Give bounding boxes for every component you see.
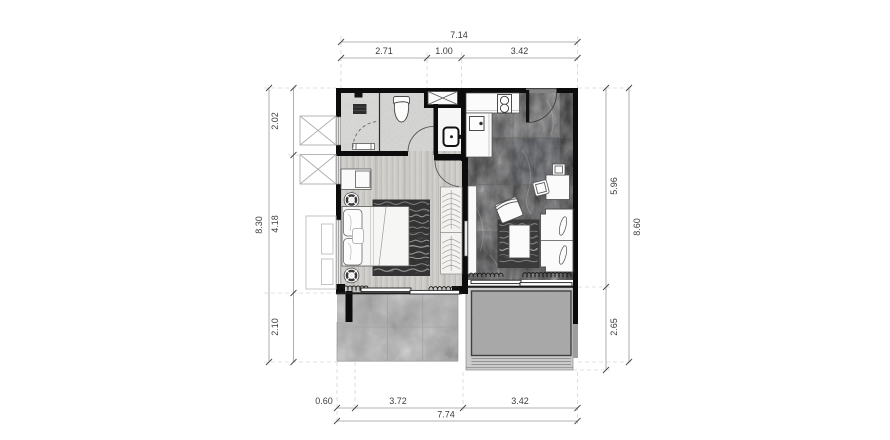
svg-text:7.14: 7.14 xyxy=(450,30,468,40)
svg-text:8.30: 8.30 xyxy=(254,216,264,234)
svg-text:2.71: 2.71 xyxy=(375,46,393,56)
svg-text:3.42: 3.42 xyxy=(511,396,529,406)
svg-text:3.42: 3.42 xyxy=(511,46,529,56)
svg-text:4.18: 4.18 xyxy=(270,215,280,233)
svg-text:2.02: 2.02 xyxy=(270,112,280,130)
svg-text:8.60: 8.60 xyxy=(632,218,642,236)
svg-text:2.65: 2.65 xyxy=(609,318,619,336)
svg-text:1.00: 1.00 xyxy=(435,46,453,56)
svg-text:0.60: 0.60 xyxy=(315,396,333,406)
svg-text:5.96: 5.96 xyxy=(609,177,619,195)
svg-text:2.10: 2.10 xyxy=(270,318,280,336)
svg-text:7.74: 7.74 xyxy=(437,410,455,420)
svg-text:3.72: 3.72 xyxy=(389,396,407,406)
